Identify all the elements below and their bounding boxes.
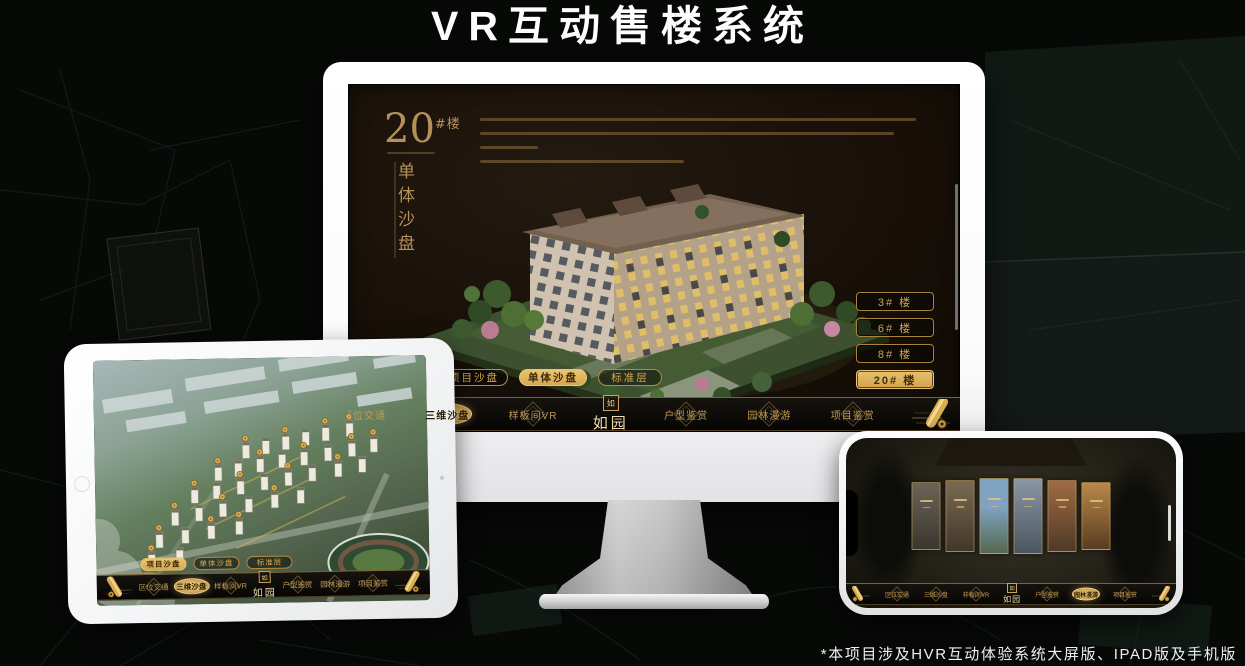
pavilion-roof-silhouette (916, 438, 1106, 466)
nav-item-project-gallery[interactable]: 项目鉴赏 (1112, 585, 1138, 604)
subtab-single-sandtable[interactable]: 单体沙盘 (519, 369, 587, 386)
ipad-tablet: 项目沙盘 单体沙盘 标准层 区位交通 三维沙盘 样板间VR 如 如园 户型鉴赏 … (64, 338, 459, 625)
nav-item-unit-plans[interactable]: 户型鉴赏 (280, 573, 314, 597)
app-logo[interactable]: 如 如园 (1003, 583, 1021, 605)
nav-item-showroom-vr[interactable]: 样板间VR (212, 574, 249, 598)
logo-text: 如园 (1003, 594, 1021, 605)
scroll-menu-icon[interactable] (910, 399, 954, 429)
logo-seal-icon: 如 (1007, 583, 1017, 593)
block-number-suffix: #楼 (435, 117, 461, 132)
floor-button-20[interactable]: 20# 楼 (856, 370, 934, 389)
nav-item-label: 园林漫游 (747, 411, 791, 422)
ipad-subtabs: 项目沙盘 单体沙盘 标准层 (140, 555, 292, 571)
scroll-menu-icon[interactable] (1151, 586, 1173, 602)
ipad-screen[interactable]: 项目沙盘 单体沙盘 标准层 区位交通 三维沙盘 样板间VR 如 如园 户型鉴赏 … (93, 355, 430, 606)
scene-gallery (912, 478, 1111, 554)
nav-item-label: 园林漫游 (1074, 593, 1098, 599)
nav-item-label: 项目鉴赏 (831, 411, 875, 422)
vertical-caption-bar (394, 162, 396, 258)
gallery-card[interactable] (980, 478, 1009, 554)
nav-item-label: 户型鉴赏 (282, 580, 312, 590)
ipad-home-button[interactable] (74, 476, 90, 492)
subtab-project-sandtable[interactable]: 项目沙盘 (140, 557, 186, 571)
nav-item-project-gallery[interactable]: 项目鉴赏 (827, 399, 879, 430)
footnote: *本项目涉及HVR互动体验系统大屏版、IPAD版及手机版 (821, 643, 1237, 664)
nav-item-label: 项目鉴赏 (358, 578, 388, 588)
nav-item-location[interactable]: 区位交通 (136, 575, 170, 599)
nav-item-label: 户型鉴赏 (664, 411, 708, 422)
promo-poster: VR互动售楼系统 20#楼 单体沙盘 (0, 0, 1245, 666)
nav-item-label: 三维沙盘 (425, 411, 469, 422)
gallery-card[interactable] (946, 480, 975, 552)
nav-item-label: 样板间VR (214, 581, 247, 591)
logo-text: 如园 (593, 412, 629, 432)
nav-item-label: 样板间VR (963, 593, 989, 599)
floor-button-8[interactable]: 8# 楼 (856, 344, 934, 363)
nav-item-label: 项目鉴赏 (1113, 593, 1137, 599)
nav-item-label: 三维沙盘 (924, 593, 948, 599)
subtab-standard-floor[interactable]: 标准层 (246, 555, 292, 569)
app-logo[interactable]: 如 如园 (252, 571, 276, 599)
scroll-menu-icon[interactable] (394, 571, 424, 594)
monitor-subtabs: 项目沙盘 单体沙盘 标准层 (440, 369, 662, 386)
nav-item-label: 区位交通 (885, 593, 909, 599)
nav-item-garden-roam[interactable]: 园林漫游 (743, 399, 795, 430)
nav-item-3d-sandtable[interactable]: 三维沙盘 (174, 574, 208, 598)
subtab-standard-floor[interactable]: 标准层 (598, 369, 662, 386)
nav-item-garden-roam[interactable]: 园林漫游 (318, 572, 352, 596)
logo-seal-icon: 如 (258, 571, 270, 583)
subtab-single-sandtable[interactable]: 单体沙盘 (193, 556, 239, 570)
nav-item-label: 区位交通 (139, 582, 169, 592)
nav-item-showroom-vr[interactable]: 样板间VR (962, 585, 990, 604)
floor-button-6[interactable]: 6# 楼 (856, 318, 934, 337)
scroll-menu-icon[interactable] (103, 576, 133, 599)
nav-item-label: 户型鉴赏 (1035, 593, 1059, 599)
nav-item-showroom-vr[interactable]: 样板间VR (505, 399, 562, 430)
phone-screen[interactable]: 区位交通 三维沙盘 样板间VR 如 如园 户型鉴赏 园林漫游 项目鉴赏 (846, 438, 1176, 608)
app-logo[interactable]: 如 如园 (593, 395, 629, 432)
gallery-card[interactable] (912, 482, 941, 550)
logo-seal-icon: 如 (603, 395, 619, 411)
nav-item-label: 样板间VR (509, 411, 558, 422)
logo-text: 如园 (253, 584, 277, 599)
scroll-menu-icon[interactable] (849, 586, 871, 602)
smartphone: 区位交通 三维沙盘 样板间VR 如 如园 户型鉴赏 园林漫游 项目鉴赏 (839, 431, 1183, 615)
nav-item-label: 三维沙盘 (176, 581, 206, 591)
gallery-card[interactable] (1082, 482, 1111, 550)
gallery-card[interactable] (1048, 480, 1077, 552)
nav-item-garden-roam[interactable]: 园林漫游 (1073, 585, 1099, 604)
nav-item-label: 园林漫游 (320, 579, 350, 589)
nav-item-unit-plans[interactable]: 户型鉴赏 (660, 399, 712, 430)
nav-item-project-gallery[interactable]: 项目鉴赏 (356, 571, 390, 595)
floor-button-3[interactable]: 3# 楼 (856, 292, 934, 311)
nav-item-3d-sandtable[interactable]: 三维沙盘 (923, 585, 949, 604)
gallery-card[interactable] (1014, 478, 1043, 554)
floor-button-group: 3# 楼 6# 楼 8# 楼 20# 楼 (856, 292, 934, 389)
home-indicator[interactable] (1168, 505, 1171, 541)
ipad-camera-dot (440, 476, 444, 480)
screen-scrollbar[interactable] (955, 184, 958, 330)
monitor-stand-shadow (520, 608, 788, 618)
phone-notch (846, 490, 858, 556)
page-title: VR互动售楼系统 (0, 0, 1245, 52)
nav-item-location[interactable]: 区位交通 (884, 585, 910, 604)
monitor-stand-base (539, 594, 769, 609)
phone-bottom-nav: 区位交通 三维沙盘 样板间VR 如 如园 户型鉴赏 园林漫游 项目鉴赏 (846, 583, 1176, 605)
nav-item-unit-plans[interactable]: 户型鉴赏 (1034, 585, 1060, 604)
nav-item-label: 区位交通 (348, 411, 386, 422)
